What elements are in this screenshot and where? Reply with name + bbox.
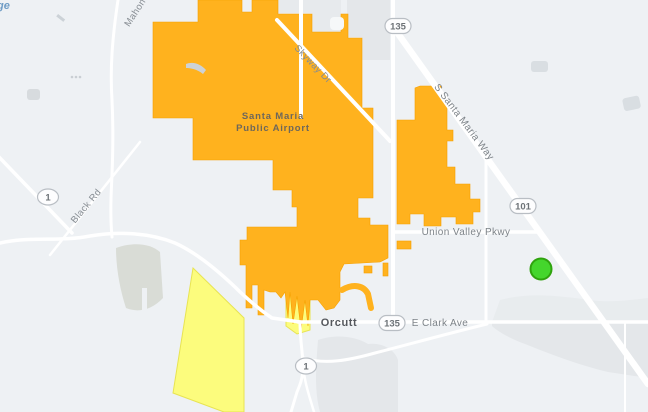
shield-hwy1-west-label: 1 (45, 193, 51, 204)
shield-hwy135-south: 135 (379, 316, 405, 331)
map-canvas[interactable]: 135 1 101 135 1 Santa Maria Public Airpo… (0, 0, 648, 412)
terrain-blob (330, 17, 344, 30)
shield-hwy1-south: 1 (296, 358, 317, 374)
shield-hwy1-south-label: 1 (303, 362, 309, 373)
terrain-slit (142, 288, 147, 312)
terrain-dot (71, 76, 74, 79)
town-label-orcutt: Orcutt (321, 317, 358, 329)
warning-zone-fragment[interactable] (383, 263, 388, 276)
airport-label-line1: Santa Maria (242, 111, 304, 122)
airport-label-line2: Public Airport (236, 123, 310, 134)
shield-hwy1-west: 1 (38, 189, 59, 205)
incident-marker[interactable] (531, 259, 552, 280)
shield-hwy135-north: 135 (385, 19, 411, 34)
shield-hwy101: 101 (510, 199, 536, 214)
urban-area (316, 337, 398, 412)
map-viewport[interactable]: 135 1 101 135 1 Santa Maria Public Airpo… (0, 0, 648, 412)
shield-hwy135-south-label: 135 (384, 319, 401, 330)
shield-hwy101-label: 101 (515, 202, 532, 213)
terrain-dot (75, 76, 78, 79)
terrain-dot (79, 76, 82, 79)
terrain-blob (531, 61, 548, 72)
road-label-union-valley-pkwy: Union Valley Pkwy (422, 227, 511, 238)
terrain-patch (347, 0, 362, 37)
terrain-patch (278, 0, 312, 13)
warning-zone-fragment[interactable] (364, 266, 372, 273)
water-label-partial: ge (0, 0, 10, 12)
terrain-blob (27, 89, 40, 100)
road-label-e-clark-ave: E Clark Ave (412, 318, 468, 329)
shield-hwy135-north-label: 135 (390, 22, 407, 33)
warning-zone-fragment[interactable] (397, 241, 411, 249)
